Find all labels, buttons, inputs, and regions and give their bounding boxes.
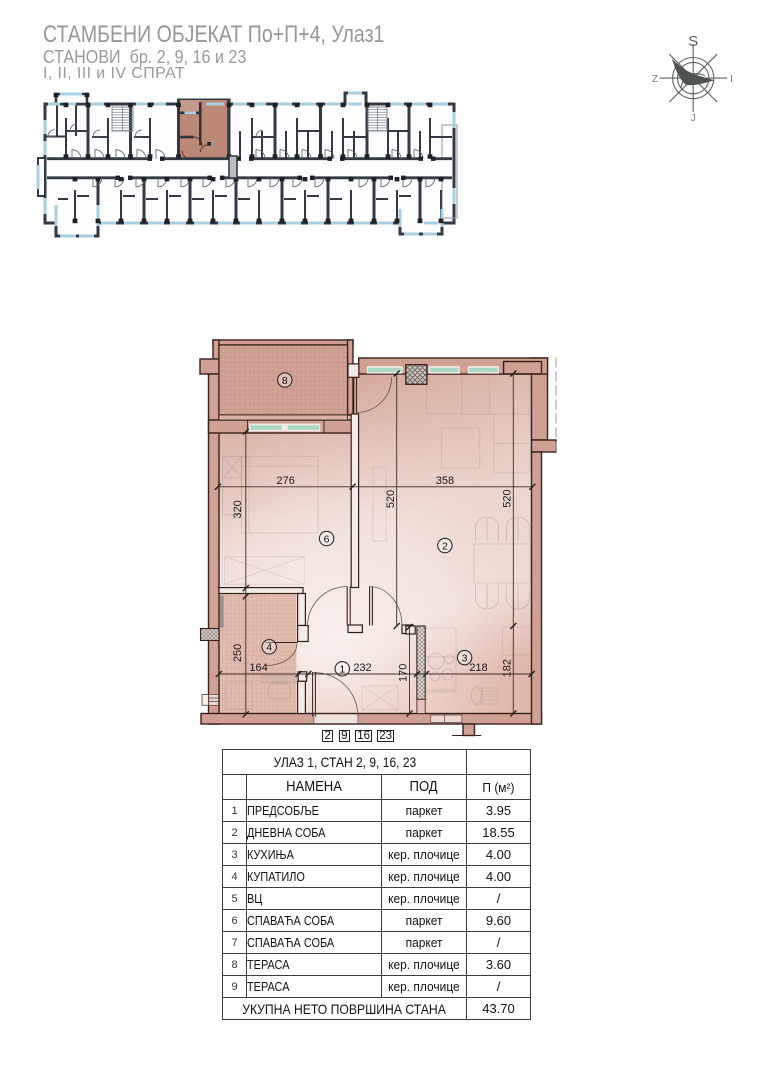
svg-text:358: 358	[436, 475, 454, 487]
svg-text:182: 182	[502, 659, 514, 677]
svg-text:218: 218	[469, 662, 487, 674]
svg-text:164: 164	[249, 662, 267, 674]
svg-text:320: 320	[232, 500, 244, 518]
svg-text:J: J	[691, 113, 696, 124]
svg-text:2: 2	[442, 540, 448, 552]
svg-text:250: 250	[232, 644, 244, 662]
svg-text:8: 8	[282, 375, 288, 387]
svg-text:S: S	[688, 33, 698, 50]
svg-text:6: 6	[324, 533, 330, 545]
svg-text:520: 520	[502, 489, 514, 507]
svg-text:520: 520	[385, 490, 397, 508]
svg-text:4: 4	[266, 642, 272, 654]
svg-text:276: 276	[277, 475, 295, 487]
svg-text:3: 3	[462, 652, 468, 664]
svg-text:232: 232	[353, 662, 371, 674]
svg-text:170: 170	[398, 664, 410, 682]
svg-text:Z: Z	[652, 74, 658, 85]
svg-text:I: I	[730, 74, 733, 85]
